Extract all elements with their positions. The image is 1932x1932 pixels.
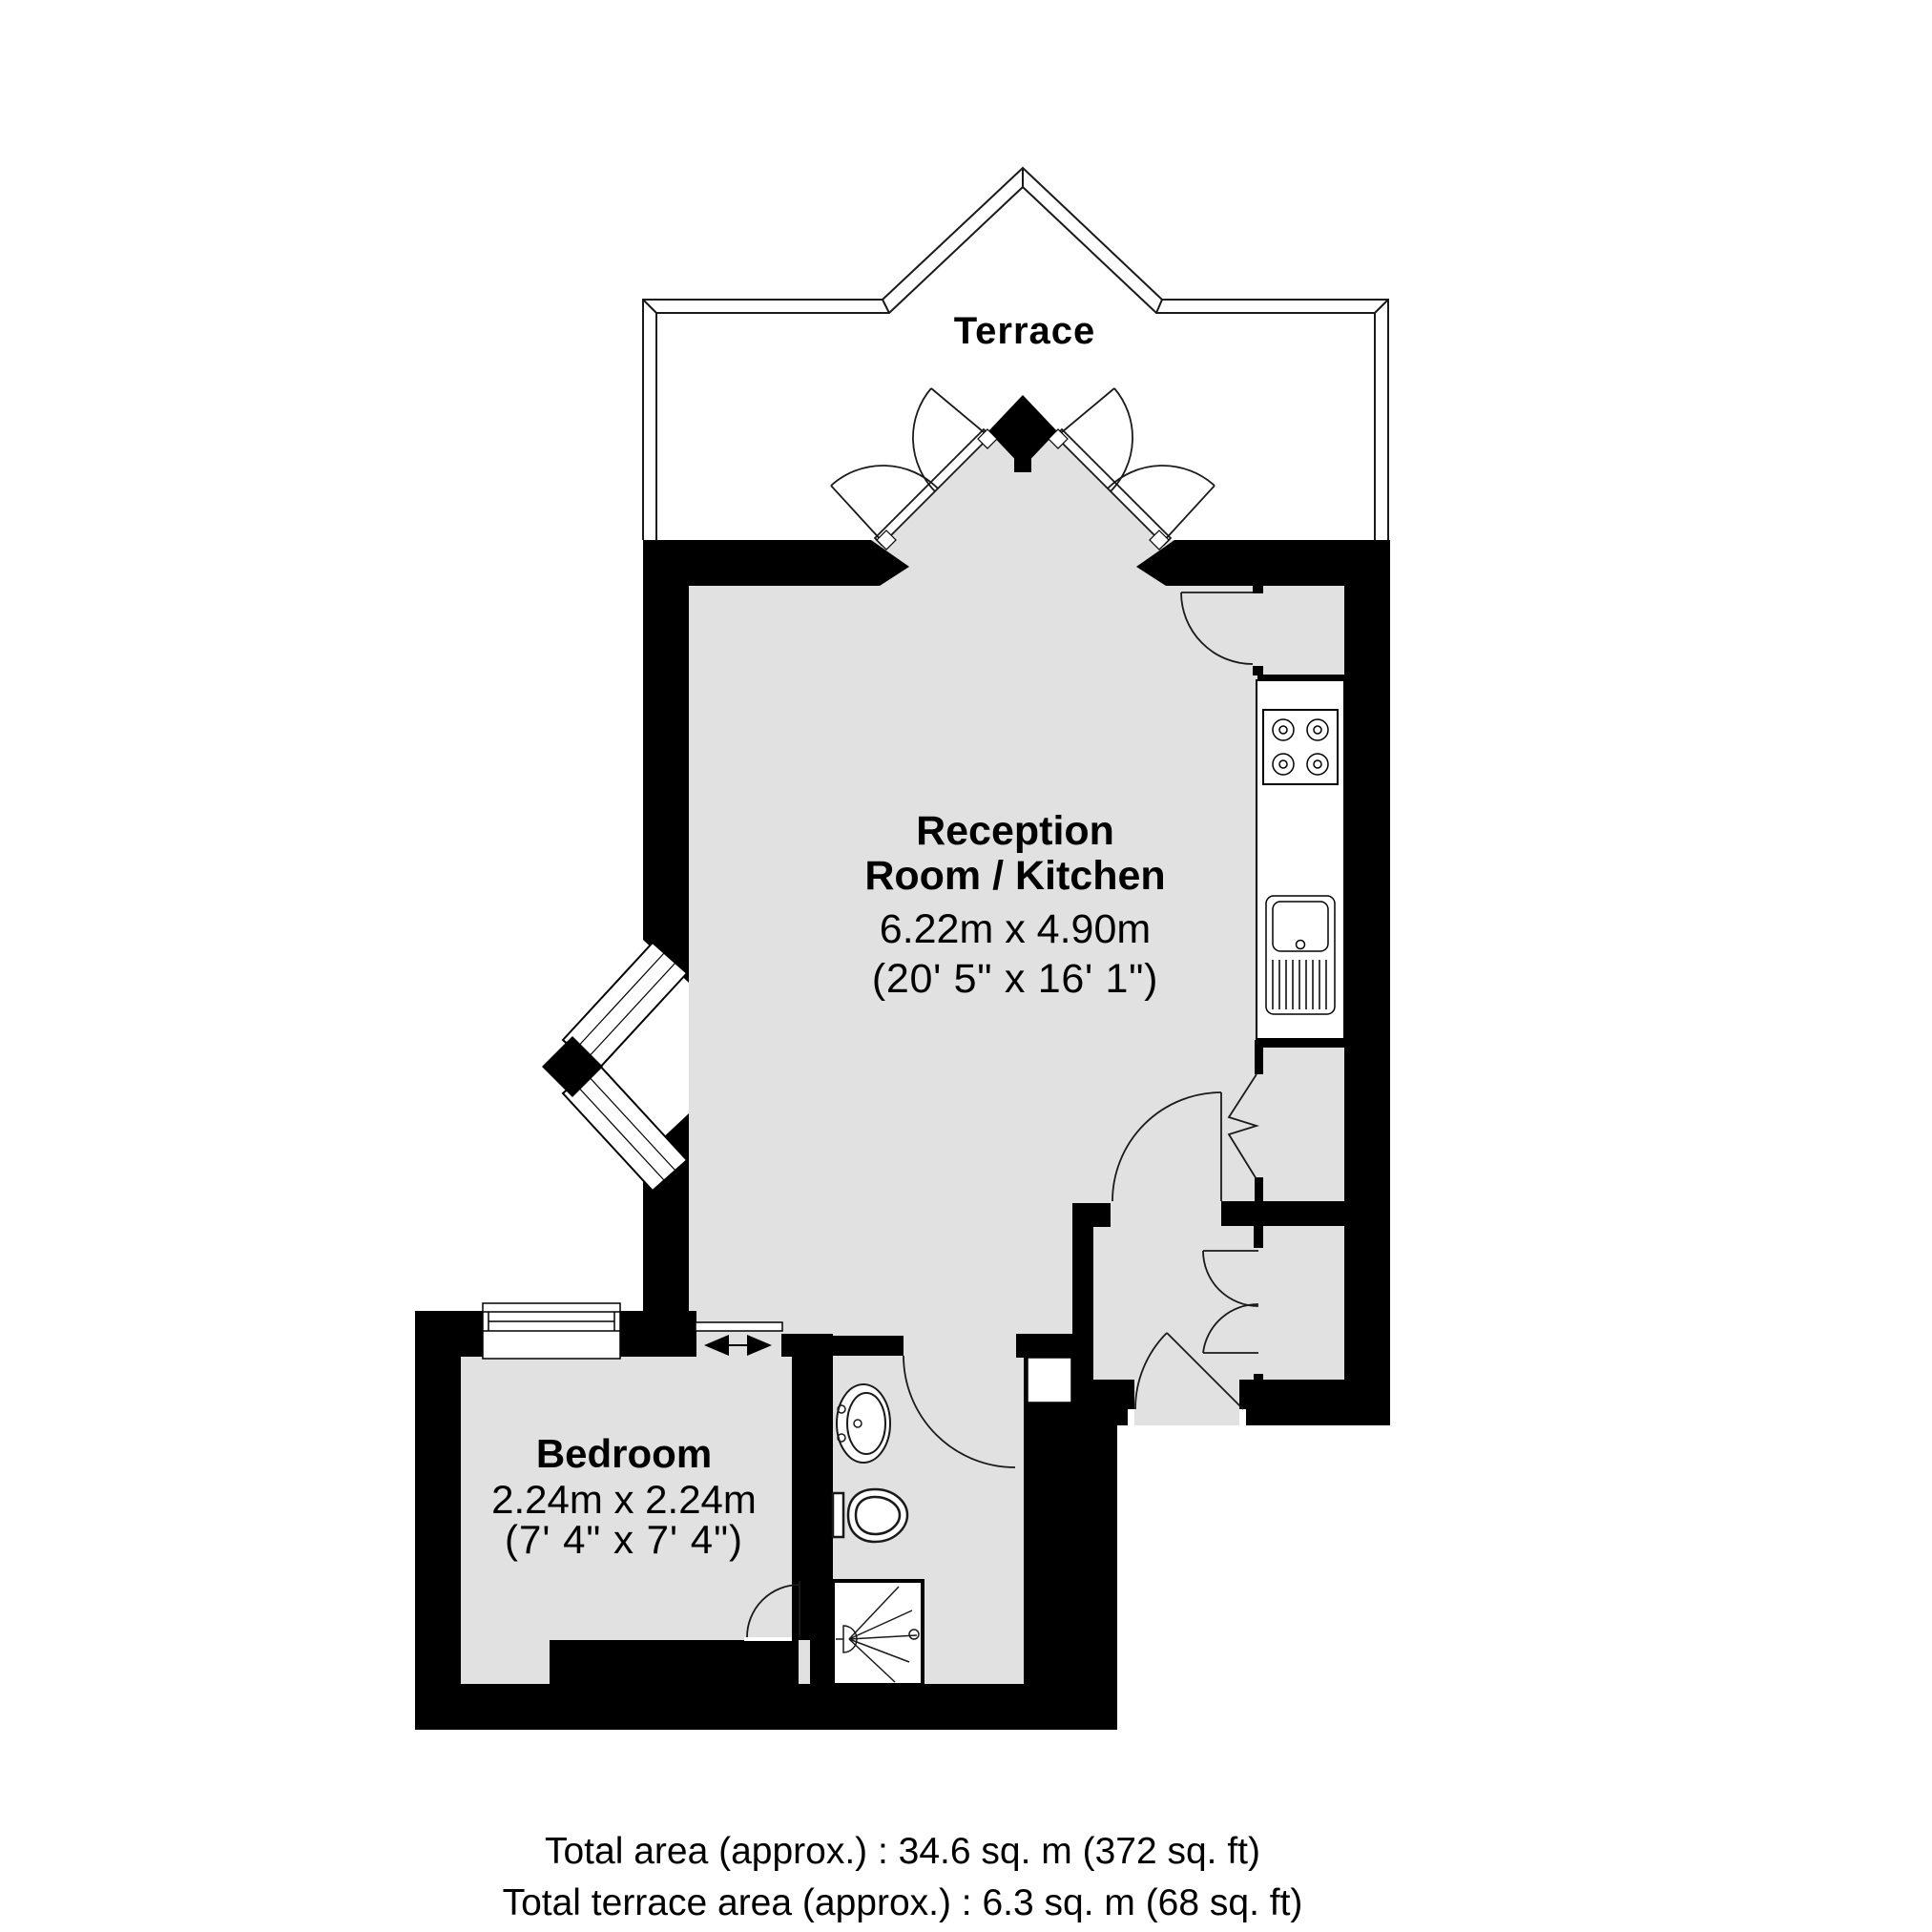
svg-text:Total area (approx.) : 34.6 sq: Total area (approx.) : 34.6 sq. m (372 s… xyxy=(545,1831,1260,1872)
svg-text:2.24m x 2.24m: 2.24m x 2.24m xyxy=(491,1477,757,1522)
svg-text:Terrace: Terrace xyxy=(954,310,1096,352)
svg-text:Room / Kitchen: Room / Kitchen xyxy=(864,853,1165,899)
svg-text:(7' 4" x 7' 4"): (7' 4" x 7' 4") xyxy=(505,1517,743,1562)
svg-text:(20' 5" x 16' 1"): (20' 5" x 16' 1") xyxy=(872,956,1158,1002)
svg-text:6.22m x 4.90m: 6.22m x 4.90m xyxy=(880,906,1151,952)
svg-text:Total terrace area (approx.) :: Total terrace area (approx.) : 6.3 sq. m… xyxy=(503,1882,1303,1923)
svg-text:Bedroom: Bedroom xyxy=(536,1431,712,1476)
svg-text:Reception: Reception xyxy=(916,808,1114,854)
